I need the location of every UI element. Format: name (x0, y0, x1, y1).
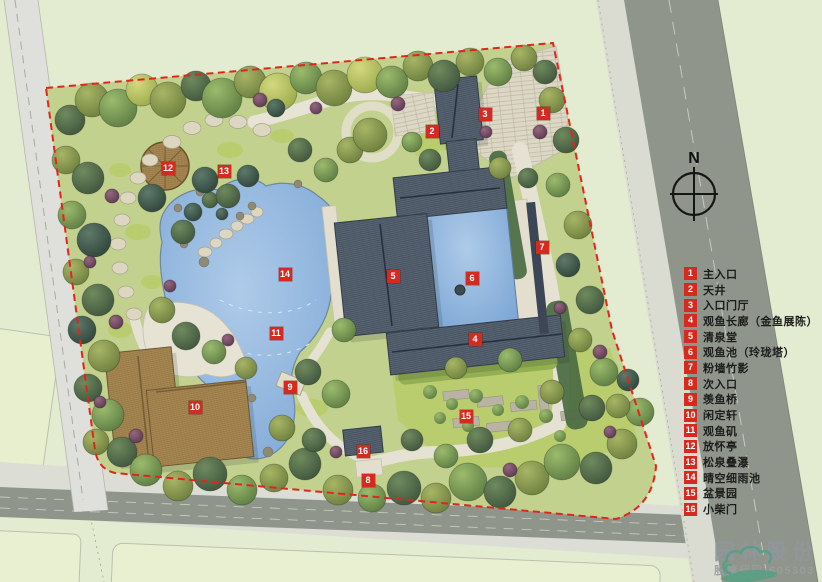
legend-item-6: 6观鱼池（玲珑塔） (684, 344, 818, 360)
legend-item-14: 14晴空细雨池 (684, 470, 818, 486)
legend: 1主入口2天井3入口门厅4观鱼长廊（金鱼展陈）5清泉堂6观鱼池（玲珑塔）7粉墙竹… (684, 266, 818, 517)
legend-number: 5 (684, 330, 697, 343)
plan-marker-10: 10 (189, 401, 202, 414)
legend-label: 盆景园 (703, 485, 738, 501)
plan-marker-4: 4 (469, 333, 482, 346)
plan-marker-2: 2 (426, 125, 439, 138)
plan-marker-5: 5 (387, 270, 400, 283)
legend-number: 3 (684, 299, 697, 312)
plan-marker-9: 9 (284, 381, 297, 394)
legend-item-13: 13松泉叠瀑 (684, 454, 818, 470)
legend-number: 10 (684, 409, 697, 422)
plan-marker-7: 7 (536, 241, 549, 254)
plan-marker-6: 6 (466, 272, 479, 285)
legend-number: 16 (684, 503, 697, 516)
site-plan-canvas: N (0, 0, 822, 582)
legend-item-16: 16小柴门 (684, 501, 818, 517)
legend-number: 15 (684, 487, 697, 500)
legend-number: 13 (684, 456, 697, 469)
legend-item-10: 10闲定轩 (684, 407, 818, 423)
brand-logo-icon (714, 542, 784, 582)
legend-label: 入口门厅 (703, 297, 749, 313)
legend-number: 11 (684, 424, 697, 437)
plan-marker-13: 13 (218, 165, 231, 178)
legend-number: 6 (684, 346, 697, 359)
legend-item-8: 8次入口 (684, 376, 818, 392)
legend-item-15: 15盆景园 (684, 486, 818, 502)
legend-label: 天井 (703, 282, 726, 298)
compass-label: N (688, 150, 700, 167)
plan-marker-11: 11 (270, 327, 283, 340)
plan-marker-3: 3 (479, 108, 492, 121)
legend-label: 观鱼长廊（金鱼展陈） (703, 313, 818, 329)
legend-label: 次入口 (703, 376, 738, 392)
legend-item-9: 9羡鱼桥 (684, 392, 818, 408)
plan-marker-16: 16 (357, 445, 370, 458)
legend-item-7: 7粉墙竹影 (684, 360, 818, 376)
legend-label: 观鱼池（玲珑塔） (703, 344, 795, 360)
legend-item-12: 12放怀亭 (684, 439, 818, 455)
plan-marker-12: 12 (162, 162, 175, 175)
legend-number: 12 (684, 440, 697, 453)
legend-label: 主入口 (703, 266, 738, 282)
legend-label: 观鱼矶 (703, 423, 738, 439)
legend-number: 1 (684, 267, 697, 280)
linglong-tower (455, 285, 465, 295)
legend-number: 8 (684, 377, 697, 390)
legend-item-11: 11观鱼矶 (684, 423, 818, 439)
legend-number: 4 (684, 314, 697, 327)
legend-number: 14 (684, 471, 697, 484)
plan-marker-14: 14 (279, 268, 292, 281)
legend-label: 清泉堂 (703, 329, 738, 345)
legend-label: 晴空细雨池 (703, 470, 761, 486)
legend-item-1: 1主入口 (684, 266, 818, 282)
legend-item-3: 3入口门厅 (684, 297, 818, 313)
plan-marker-1: 1 (537, 107, 550, 120)
legend-item-4: 4观鱼长廊（金鱼展陈） (684, 313, 818, 329)
legend-item-5: 5清泉堂 (684, 329, 818, 345)
legend-label: 闲定轩 (703, 407, 738, 423)
brand-watermark: 园林股份 股票代码:605303 (714, 542, 818, 578)
legend-number: 2 (684, 283, 697, 296)
legend-label: 羡鱼桥 (703, 391, 738, 407)
legend-label: 小柴门 (703, 501, 738, 517)
legend-number: 7 (684, 361, 697, 374)
legend-label: 粉墙竹影 (703, 360, 749, 376)
plan-marker-15: 15 (460, 410, 473, 423)
legend-item-2: 2天井 (684, 282, 818, 298)
plan-marker-8: 8 (362, 474, 375, 487)
legend-label: 松泉叠瀑 (703, 454, 749, 470)
legend-number: 9 (684, 393, 697, 406)
legend-label: 放怀亭 (703, 438, 738, 454)
